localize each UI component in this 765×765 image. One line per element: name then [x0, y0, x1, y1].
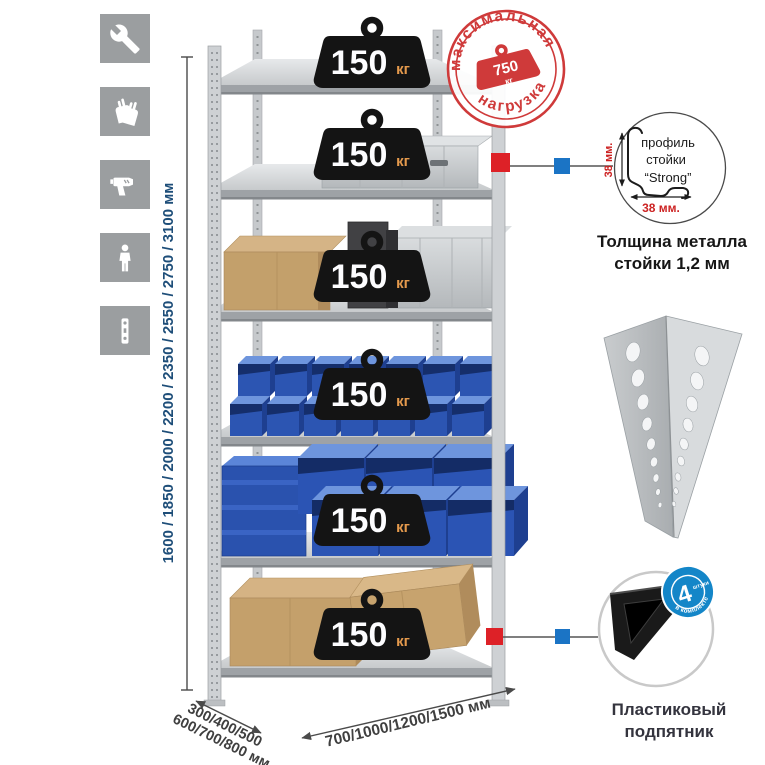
storage-bin: [267, 396, 307, 436]
load-unit: кг: [396, 61, 410, 78]
load-unit: кг: [396, 153, 410, 170]
product-infographic: 1600 / 1850 / 2000 / 2200 / 2350 / 2550 …: [0, 0, 765, 765]
load-unit: кг: [396, 393, 410, 410]
load-value: 150: [331, 44, 388, 82]
profile-dim-vertical: 38 мм.: [603, 143, 615, 178]
max-load-stamp: максимальная нагрузка 750 кг: [435, 0, 577, 139]
storage-bin: [448, 486, 528, 556]
storage-bin: [275, 356, 315, 396]
foot-caption-line2: подпятник: [586, 721, 752, 743]
load-value: 150: [331, 502, 388, 540]
marker-blue-bottom: [555, 629, 570, 644]
profile-label-1: профиль: [641, 135, 695, 150]
marker-red-bottom: [486, 628, 503, 645]
load-unit: кг: [396, 633, 410, 650]
load-value: 150: [331, 258, 388, 296]
load-value: 150: [331, 616, 388, 654]
load-unit: кг: [396, 519, 410, 536]
storage-bin: [238, 356, 278, 396]
rack-illustration: 150кг 150кг 150кг 150кг 150кг 150кг макс…: [0, 0, 765, 765]
profile-dim-horizontal: 38 мм.: [642, 201, 680, 215]
corner-post-image: [604, 316, 742, 538]
foot-caption: Пластиковый подпятник: [586, 699, 752, 744]
load-value: 150: [331, 376, 388, 414]
profile-label-3: “Strong”: [645, 170, 692, 185]
load-unit: кг: [396, 275, 410, 292]
width-label: 700/1000/1200/1500 мм: [324, 695, 493, 751]
height-dimension-line: [181, 57, 193, 690]
marker-blue-top: [554, 158, 570, 174]
profile-label-2: стойки: [646, 152, 686, 167]
marker-red-top: [491, 153, 510, 172]
profile-detail-circle: 38 мм. 38 мм. профиль стойки “Strong”: [603, 113, 726, 224]
load-value: 150: [331, 136, 388, 174]
profile-caption: Толщина металла стойки 1,2 мм: [583, 231, 761, 276]
profile-caption-line1: Толщина металла: [583, 231, 761, 253]
storage-bin: [452, 396, 492, 436]
storage-bin: [230, 396, 270, 436]
profile-caption-line2: стойки 1,2 мм: [583, 253, 761, 275]
storage-bin: [423, 356, 463, 396]
foot-caption-line1: Пластиковый: [586, 699, 752, 721]
